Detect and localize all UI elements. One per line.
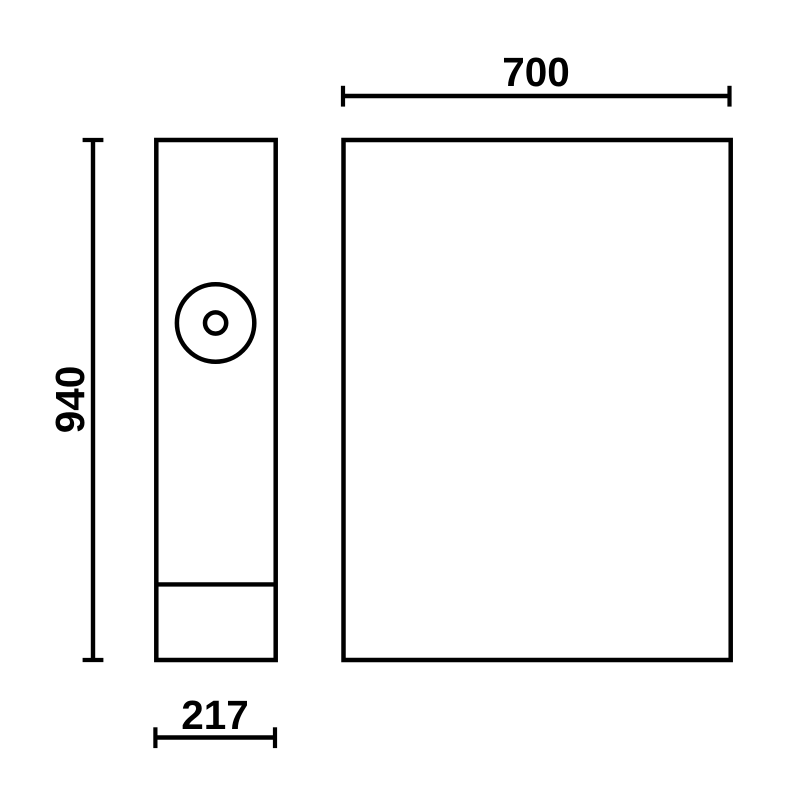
svg-text:940: 940 (47, 366, 93, 434)
svg-text:217: 217 (181, 692, 249, 738)
svg-text:700: 700 (502, 49, 570, 95)
